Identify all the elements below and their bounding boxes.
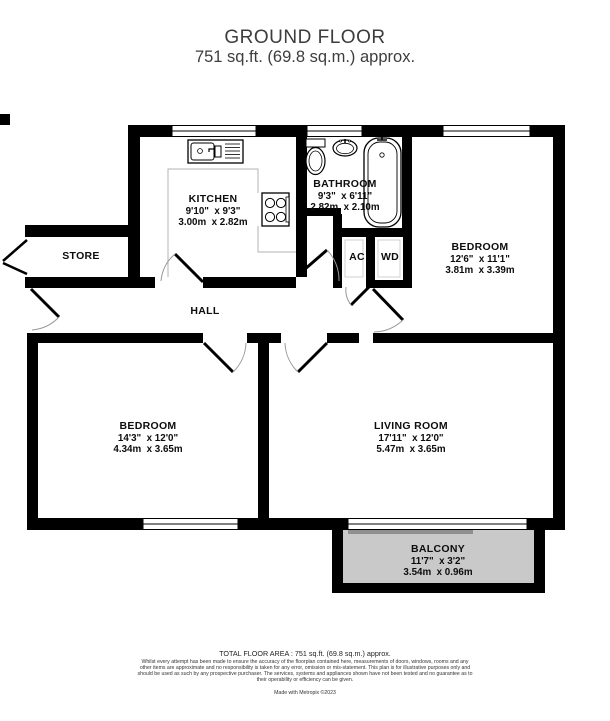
toilet-icon (306, 139, 325, 175)
floorplan-drawing (0, 0, 610, 721)
kitchen-sink-icon (188, 140, 243, 163)
room-label-store: STORE (62, 251, 99, 263)
floorplan-page: GROUND FLOOR 751 sq.ft. (69.8 sq.m.) app… (0, 0, 610, 721)
room-label-bedroom2: BEDROOM 14'3" x 12'0" 4.34m x 3.65m (113, 421, 182, 456)
room-label-kitchen: KITCHEN 9'10" x 9'3" 3.00m x 2.82m (178, 194, 247, 229)
room-label-balcony: BALCONY 11'7" x 3'2" 3.54m x 0.96m (403, 544, 472, 579)
total-floor-area: TOTAL FLOOR AREA : 751 sq.ft. (69.8 sq.m… (0, 649, 610, 658)
room-label-bedroom1: BEDROOM 12'6" x 11'1" 3.81m x 3.39m (445, 242, 514, 277)
credit-text: Made with Metropix ©2023 (0, 690, 610, 696)
room-label-wd: WD (381, 252, 399, 264)
room-label-hall: HALL (190, 306, 219, 318)
disclaimer-text: Whilst every attempt has been made to en… (135, 660, 475, 684)
room-label-bathroom: BATHROOM 9'3" x 6'11" 2.82m x 2.10m (310, 179, 379, 214)
entry-splay-lines (3, 240, 27, 274)
basin-icon (333, 139, 357, 156)
stove-icon (262, 193, 289, 226)
room-label-living-room: LIVING ROOM 17'11" x 12'0" 5.47m x 3.65m (374, 421, 448, 456)
room-label-ac: AC (349, 252, 365, 264)
